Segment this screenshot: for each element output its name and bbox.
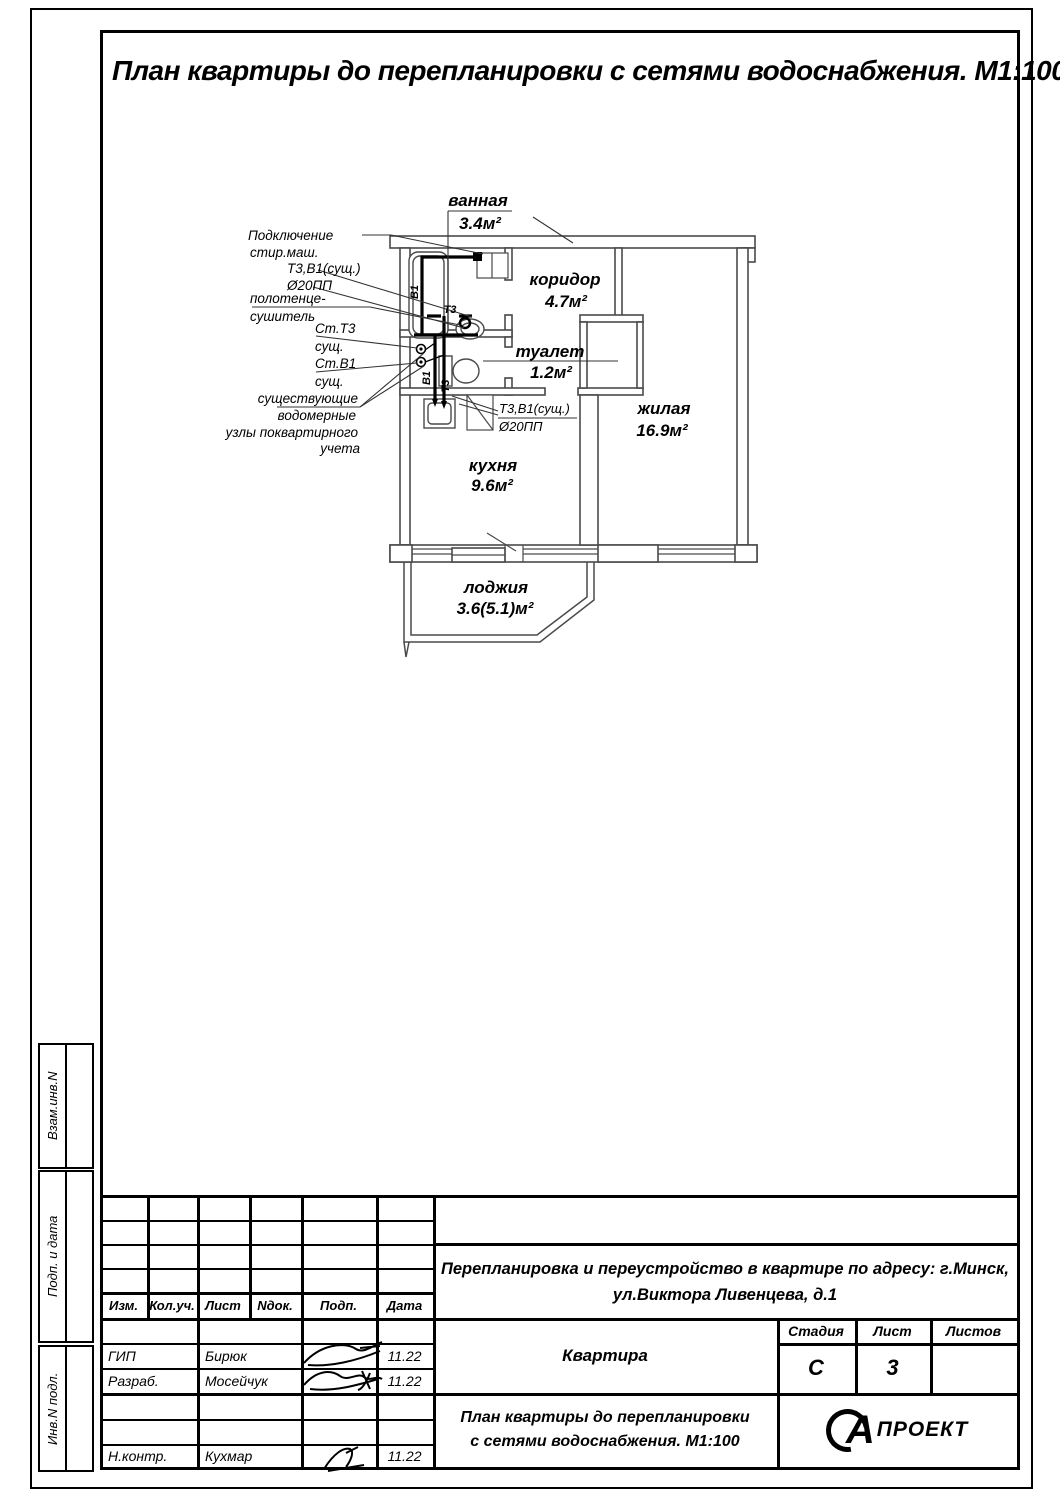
object-name: Квартира (433, 1318, 777, 1393)
sheet-value: 3 (855, 1343, 930, 1393)
doc-title-line-2: с сетями водоснабжения. М1:100 (470, 1430, 739, 1454)
project-line-2: ул.Виктора Ливенцева, д.1 (613, 1282, 837, 1308)
room-label-wc: туалет (516, 342, 585, 361)
title-block: Изм. Кол.уч. Лист Nдок. Подп. Дата ГИП Б… (100, 1195, 1017, 1467)
room-area-kitchen: 9.6м² (471, 476, 514, 495)
kitchen-sink (424, 399, 455, 428)
line (301, 1195, 304, 1467)
row-nkontr-name: Кухмар (197, 1444, 301, 1467)
col-izm: Изм. (100, 1292, 147, 1318)
margin-label-inv: Инв.N подл. (40, 1347, 65, 1470)
annotation-towel-2: сушитель (250, 309, 315, 324)
room-label-kitchen: кухня (469, 456, 517, 475)
room-area-corridor: 4.7м² (544, 292, 588, 311)
company-logo: А ПРОЕКТ (777, 1393, 1017, 1467)
annotation-riser-v1-2: сущ. (315, 374, 344, 389)
doc-title-line-1: План квартиры до перепланировки (460, 1406, 749, 1430)
margin-box-podp: Подп. и дата (38, 1170, 94, 1343)
pipe-label-v1-riser: В1 (421, 371, 433, 385)
signature-nkontr (314, 1443, 374, 1473)
line (100, 1220, 433, 1222)
annotation-washer-2: стир.маш. (250, 245, 318, 260)
col-ndok: Nдок. (249, 1292, 301, 1318)
floor-plan: ванная 3.4м² коридор 4.7м² туалет 1.2м² … (200, 160, 800, 680)
row-gip-role: ГИП (100, 1343, 197, 1368)
annotation-riser-t3-2: сущ. (315, 339, 344, 354)
stage-label: Стадия (777, 1318, 855, 1343)
annotation-meters-1: существующие (258, 391, 358, 406)
annotation-meters-4: учета (319, 441, 360, 456)
logo-text: ПРОЕКТ (877, 1418, 968, 1442)
margin-box-inv: Инв.N подл. (38, 1345, 94, 1472)
room-label-living: жилая (637, 399, 691, 418)
project-description: Перепланировка и переустройство в кварти… (433, 1246, 1017, 1318)
sheet-label: Лист (855, 1318, 930, 1343)
pipe-label-v1: В1 (409, 285, 421, 299)
annotation-meters-3: узлы поквартирного (225, 425, 359, 440)
annotation-washer-1: Подключение (248, 228, 333, 243)
signature-razrab (300, 1365, 385, 1393)
annotation-towel-1: полотенце- (250, 291, 326, 306)
kitchen-pipe-note-1: Т3,В1(сущ.) (499, 401, 570, 416)
divider (65, 1045, 67, 1167)
col-podp: Подп. (301, 1292, 376, 1318)
col-data: Дата (376, 1292, 433, 1318)
sheets-value (930, 1343, 1017, 1393)
line (100, 1268, 433, 1270)
col-koluch: Кол.уч. (147, 1292, 197, 1318)
line (197, 1195, 200, 1467)
annotation-pipes-1: Т3,В1(сущ.) (287, 261, 361, 276)
line (376, 1195, 379, 1467)
divider (65, 1347, 67, 1470)
col-list: Лист (197, 1292, 249, 1318)
stage-value: С (777, 1343, 855, 1393)
sheets-label: Листов (930, 1318, 1017, 1343)
row-gip-name: Бирюк (197, 1343, 301, 1368)
room-area-wc: 1.2м² (530, 363, 573, 382)
kitchen-pipe-note-2: Ø20ПП (498, 419, 543, 434)
sheet-title: План квартиры до перепланировки с сетями… (112, 55, 1008, 87)
line (100, 1419, 433, 1421)
pipe-label-t3-riser: Т3 (440, 380, 452, 393)
margin-label-podp: Подп. и дата (40, 1172, 65, 1341)
annotation-meters-2: водомерные (278, 408, 356, 423)
row-razrab-name: Мосейчук (197, 1368, 301, 1393)
annotation-riser-v1-1: Ст.В1 (315, 356, 356, 371)
room-label-bath: ванная (448, 191, 508, 210)
project-line-1: Перепланировка и переустройство в кварти… (441, 1256, 1009, 1282)
divider (65, 1172, 67, 1341)
pipe-label-t3: Т3 (444, 304, 457, 316)
room-area-living: 16.9м² (636, 421, 689, 440)
line (100, 1244, 433, 1246)
line (100, 1195, 1017, 1198)
annotation-riser-t3-1: Ст.Т3 (315, 321, 356, 336)
room-area-bath: 3.4м² (459, 214, 502, 233)
room-label-loggia: лоджия (463, 578, 528, 597)
room-label-corridor: коридор (529, 270, 600, 289)
row-nkontr-date: 11.22 (376, 1444, 433, 1467)
margin-box-vzam: Взам.инв.N (38, 1043, 94, 1169)
margin-label-vzam: Взам.инв.N (40, 1045, 65, 1167)
room-area-loggia: 3.6(5.1)м² (457, 599, 535, 618)
row-razrab-role: Разраб. (100, 1368, 197, 1393)
row-nkontr-role: Н.контр. (100, 1444, 197, 1467)
doc-title: План квартиры до перепланировки с сетями… (433, 1393, 777, 1467)
